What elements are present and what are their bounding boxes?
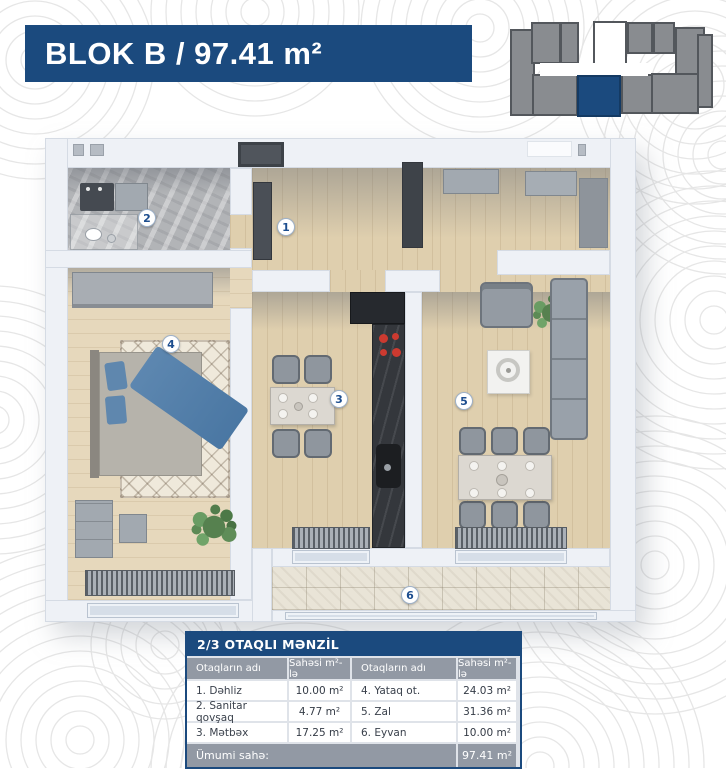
dining-chair bbox=[491, 427, 518, 455]
room-name-cell: 5. Zal bbox=[352, 702, 456, 721]
total-area-label: Ümumi sahə: bbox=[187, 744, 456, 767]
bedroom-door-opening bbox=[230, 268, 252, 308]
living-balcony-window bbox=[455, 550, 567, 564]
wall-niche bbox=[527, 141, 572, 157]
washing-machine bbox=[80, 183, 114, 211]
wall-bath-bedroom bbox=[45, 250, 252, 268]
plate-icon bbox=[497, 488, 507, 498]
wall-balcony-left bbox=[252, 548, 272, 622]
balcony-railing bbox=[285, 612, 597, 620]
title-banner: BLOK B / 97.41 m² bbox=[25, 25, 472, 82]
bedroom-window bbox=[87, 603, 239, 618]
shower-area bbox=[70, 214, 138, 250]
dining-chair bbox=[523, 501, 550, 529]
area-table: 2/3 OTAQLI MƏNZİL Otaqların adı Sahəsi m… bbox=[185, 631, 522, 769]
kitchen-tall-cabinet bbox=[350, 292, 405, 324]
plant-icon bbox=[203, 516, 226, 539]
stool bbox=[119, 514, 147, 543]
stove-burner-icon bbox=[392, 333, 399, 340]
key-plan-highlighted-unit bbox=[578, 76, 620, 116]
plate-icon bbox=[469, 461, 479, 471]
kitchen-chair bbox=[272, 429, 300, 458]
kitchen-chair bbox=[272, 355, 300, 384]
faucet-icon bbox=[384, 464, 391, 471]
floor-plan: 1 2 3 4 5 6 bbox=[45, 138, 636, 622]
col-header-name-left: Otaqların adı bbox=[187, 658, 287, 679]
room-badge-3: 3 bbox=[330, 390, 348, 408]
plate-icon bbox=[525, 461, 535, 471]
kitchen-balcony-window bbox=[292, 550, 370, 564]
room-area-cell: 17.25 m² bbox=[289, 723, 350, 742]
banner-title: BLOK B / 97.41 m² bbox=[45, 36, 322, 72]
pillow bbox=[104, 361, 128, 392]
dresser bbox=[75, 500, 113, 558]
plate-icon bbox=[469, 488, 479, 498]
dining-chair bbox=[523, 427, 550, 455]
wall-living-corridor bbox=[497, 250, 610, 275]
shower-drain-icon bbox=[107, 234, 116, 243]
kitchen-window-blinds bbox=[292, 527, 370, 549]
wall-bath-right-upper bbox=[230, 168, 252, 215]
pillow bbox=[105, 395, 127, 425]
dining-chair bbox=[459, 427, 486, 455]
vent-icon bbox=[73, 144, 84, 156]
area-table-grid: Otaqların adı Sahəsi m²-lə Otaqların adı… bbox=[187, 658, 520, 767]
dish-icon bbox=[496, 474, 508, 486]
console-cabinet bbox=[443, 169, 499, 194]
plate-icon bbox=[497, 461, 507, 471]
toilet bbox=[85, 228, 102, 241]
bed-headboard bbox=[90, 350, 99, 478]
room-area-cell: 10.00 m² bbox=[289, 681, 350, 700]
dining-chair bbox=[459, 501, 486, 529]
room-name-cell: 6. Eyvan bbox=[352, 723, 456, 742]
plate-icon bbox=[525, 488, 535, 498]
wall-kitchen-living bbox=[405, 292, 422, 548]
room-area-cell: 24.03 m² bbox=[458, 681, 516, 700]
washer-knob-icon bbox=[98, 187, 102, 191]
vent-icon bbox=[90, 144, 104, 156]
kitchen-counter bbox=[372, 324, 405, 548]
dining-chair bbox=[491, 501, 518, 529]
hallway-wardrobe bbox=[253, 182, 272, 260]
room-badge-5: 5 bbox=[455, 392, 473, 410]
stove-burner-icon bbox=[380, 349, 387, 356]
room-name-cell: 4. Yataq ot. bbox=[352, 681, 456, 700]
room-area-cell: 4.77 m² bbox=[289, 702, 350, 721]
room-area-cell: 31.36 m² bbox=[458, 702, 516, 721]
area-table-title: 2/3 OTAQLI MƏNZİL bbox=[187, 633, 520, 656]
col-header-name-right: Otaqların adı bbox=[352, 658, 456, 679]
bathroom-cabinet bbox=[115, 183, 148, 211]
wall-right bbox=[610, 138, 636, 622]
key-plan-corridor bbox=[540, 63, 648, 76]
total-area-value: 97.41 m² bbox=[458, 744, 516, 767]
room-badge-6: 6 bbox=[401, 586, 419, 604]
kitchen-chair bbox=[304, 429, 332, 458]
building-key-plan bbox=[508, 18, 718, 120]
room-badge-4: 4 bbox=[162, 335, 180, 353]
wall-hall-kitchen-left bbox=[252, 270, 330, 292]
room-balcony-floor bbox=[272, 567, 610, 610]
wall-bedroom-right bbox=[230, 308, 252, 600]
room-badge-2: 2 bbox=[138, 209, 156, 227]
wall-hall-kitchen-right bbox=[385, 270, 440, 292]
stove-burner-icon bbox=[392, 348, 401, 357]
coffee-table-center-icon bbox=[506, 368, 511, 373]
room-badge-1: 1 bbox=[277, 218, 295, 236]
armchair bbox=[480, 282, 533, 328]
col-header-area-right: Sahəsi m²-lə bbox=[458, 658, 516, 679]
plate-icon bbox=[278, 409, 288, 419]
entrance-door bbox=[238, 142, 284, 167]
plate-icon bbox=[308, 409, 318, 419]
living-window-blinds bbox=[455, 527, 567, 549]
dish-icon bbox=[294, 402, 303, 411]
room-name-cell: 1. Dəhliz bbox=[187, 681, 287, 700]
corridor-cabinet bbox=[402, 162, 423, 248]
kitchen-chair bbox=[304, 355, 332, 384]
plate-icon bbox=[278, 393, 288, 403]
stove-burner-icon bbox=[379, 334, 388, 343]
living-bench bbox=[525, 171, 577, 196]
bedroom-window-blinds bbox=[85, 570, 235, 596]
room-name-cell: 2. Sanitar qovşaq bbox=[187, 702, 287, 721]
living-wardrobe bbox=[579, 178, 608, 248]
bathroom-door-opening bbox=[230, 215, 252, 248]
wall-left bbox=[45, 138, 68, 622]
room-name-cell: 3. Mətbəx bbox=[187, 723, 287, 742]
bedroom-wardrobe bbox=[72, 272, 213, 308]
col-header-area-left: Sahəsi m²-lə bbox=[289, 658, 350, 679]
washer-knob-icon bbox=[86, 187, 90, 191]
vent-icon bbox=[578, 144, 586, 156]
sofa bbox=[550, 278, 588, 440]
plate-icon bbox=[308, 393, 318, 403]
room-area-cell: 10.00 m² bbox=[458, 723, 516, 742]
kitchen-door-opening bbox=[330, 270, 385, 292]
